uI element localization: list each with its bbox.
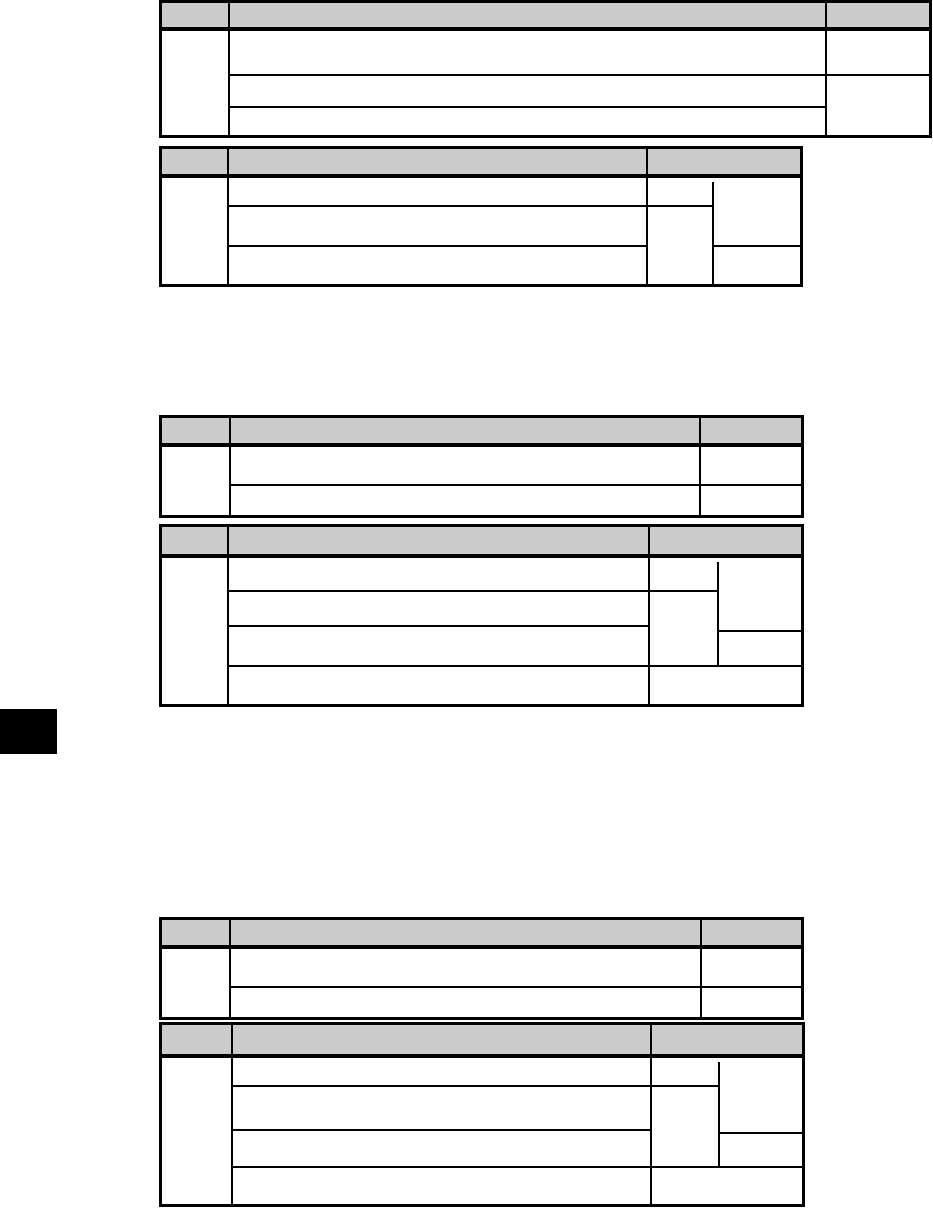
table-6-h-divider-3 xyxy=(719,1132,802,1134)
table-4-h-divider-2 xyxy=(228,625,649,627)
table-2-header-row xyxy=(162,149,800,178)
table-5-v-divider-1 xyxy=(229,920,231,1017)
table-2-h-divider-1 xyxy=(228,205,713,207)
table-5-header-row xyxy=(162,920,801,949)
table-6-v-divider-1 xyxy=(231,1025,233,1204)
table-1-h-divider-1 xyxy=(229,74,929,76)
table-2-h-divider-2 xyxy=(228,245,647,247)
table-3-h-divider-1 xyxy=(230,484,801,486)
table-2-h-divider-3 xyxy=(713,245,800,247)
table-4-v-divider-3 xyxy=(717,562,719,666)
table-2-v-divider-3 xyxy=(712,182,714,284)
table-6-h-divider-4 xyxy=(232,1166,802,1168)
table-6-header-row xyxy=(162,1025,802,1058)
chapter-tab-marker xyxy=(0,709,57,754)
document-page xyxy=(0,0,933,1209)
table-4-h-divider-3 xyxy=(718,630,801,632)
table-5-v-divider-2 xyxy=(700,920,702,1017)
table-5-h-divider-1 xyxy=(230,986,801,988)
table-1-header-row xyxy=(162,3,929,31)
table-2-v-divider-2 xyxy=(646,149,648,284)
table-6-h-divider-2 xyxy=(232,1129,651,1131)
table-2-v-divider-1 xyxy=(227,149,229,284)
table-6-h-divider-1 xyxy=(232,1085,719,1087)
table-4-v-divider-2 xyxy=(648,527,650,704)
table-4-h-divider-1 xyxy=(228,590,718,592)
table-6-v-divider-2 xyxy=(650,1025,652,1204)
table-3-v-divider-1 xyxy=(229,418,231,515)
table-1-v-divider-2 xyxy=(825,3,827,135)
table-4-h-divider-4 xyxy=(228,665,801,667)
table-1-h-divider-2 xyxy=(229,106,826,108)
table-1-v-divider-1 xyxy=(228,3,230,135)
table-6-v-divider-3 xyxy=(718,1062,720,1167)
table-3-v-divider-2 xyxy=(699,418,701,515)
table-4-v-divider-1 xyxy=(227,527,229,704)
table-3-header-row xyxy=(162,418,801,447)
table-4-header-row xyxy=(162,527,801,558)
